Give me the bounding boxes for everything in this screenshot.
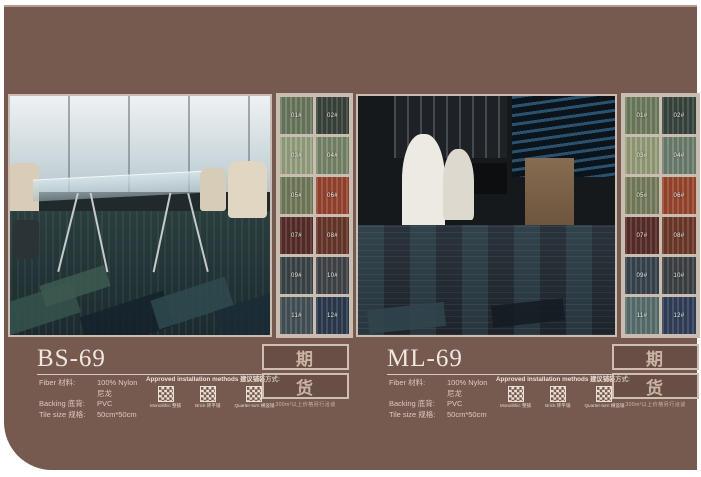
spec-label: Backing 底背: — [39, 399, 97, 410]
swatch: 11# — [625, 297, 659, 334]
catalog-page: 01# 02# 03# 04# 05# 06# 07# 08# 09# 10# … — [0, 0, 701, 477]
swatch-label: 07# — [637, 233, 648, 239]
swatch-label: 04# — [674, 153, 685, 159]
product-code: ML-69 — [387, 345, 463, 373]
swatch: 05# — [280, 177, 313, 214]
stamp-box-bottom: 货 — [612, 373, 699, 399]
photo-chair — [228, 161, 267, 218]
product-photo-bs69 — [8, 94, 272, 337]
swatch: 10# — [316, 257, 349, 294]
swatch-label: 02# — [674, 113, 685, 119]
swatch: 07# — [280, 217, 313, 254]
spec-row: Fiber 材料: 100% Nylon 尼龙 — [389, 378, 497, 399]
stamp-note: 300m²以上价格另行洽谈 — [262, 401, 349, 408]
photo-carpet — [10, 211, 270, 335]
swatch: 09# — [280, 257, 313, 294]
product-info-bs69: BS-69 Fiber 材料: 100% Nylon 尼龙 Backing 底背… — [34, 347, 354, 419]
swatch: 03# — [625, 137, 659, 174]
swatch-label: 08# — [674, 233, 685, 239]
swatch: 07# — [625, 217, 659, 254]
installation-header: Approved installation methods 建议铺装方式: — [146, 374, 256, 383]
carpet-patch — [367, 302, 446, 334]
installation-method: Monolithic 整铺 — [150, 386, 181, 409]
photo-chair — [200, 168, 226, 211]
photo-white-chair — [402, 134, 446, 234]
swatch: 12# — [662, 297, 696, 334]
swatch-label: 11# — [291, 313, 301, 319]
swatch-label: 09# — [637, 273, 648, 279]
swatch: 08# — [662, 217, 696, 254]
spec-label: Fiber 材料: — [39, 378, 97, 399]
swatch: 04# — [316, 137, 349, 174]
quarter-turn-pattern-icon — [246, 386, 262, 402]
futures-stamp: 期 货 300m²以上价格另行洽谈 — [262, 344, 349, 408]
spec-row: Backing 底背: PVC — [39, 399, 147, 410]
swatch-label: 09# — [291, 273, 302, 279]
spec-value: 100% Nylon 尼龙 — [447, 378, 497, 399]
swatch-label: 12# — [327, 313, 338, 319]
swatch-label: 06# — [327, 193, 338, 199]
swatch: 01# — [625, 97, 659, 134]
spec-label: Tile size 规格: — [389, 410, 447, 421]
photo-chair — [13, 220, 39, 258]
photo-carpet — [358, 225, 615, 335]
swatch: 10# — [662, 257, 696, 294]
stamp-character: 货 — [646, 374, 665, 399]
spec-label: Backing 底背: — [389, 399, 447, 410]
spec-row: Backing 底背: PVC — [389, 399, 497, 410]
swatch: 02# — [316, 97, 349, 134]
swatch-label: 05# — [637, 193, 648, 199]
swatch: 12# — [316, 297, 349, 334]
product-info-ml69: ML-69 Fiber 材料: 100% Nylon 尼龙 Backing 底背… — [384, 347, 701, 419]
monolithic-pattern-icon — [508, 386, 524, 402]
swatch: 03# — [280, 137, 313, 174]
method-label: Brick 砖平铺 — [195, 403, 220, 409]
swatch: 02# — [662, 97, 696, 134]
spec-row: Tile size 规格: 50cm*50cm — [39, 410, 147, 421]
spec-table: Fiber 材料: 100% Nylon 尼龙 Backing 底背: PVC … — [39, 378, 147, 420]
installation-row: Monolithic 整铺 Brick 砖平铺 Quarter-turn 横竖铺 — [500, 386, 606, 409]
swatch: 09# — [625, 257, 659, 294]
spec-value: 50cm*50cm — [447, 410, 497, 421]
installation-method: Monolithic 整铺 — [500, 386, 531, 409]
swatch-grid-ml69: 01# 02# 03# 04# 05# 06# 07# 08# 09# 10# … — [621, 93, 700, 338]
spec-value: PVC — [447, 399, 497, 410]
stamp-note: 300m²以上价格另行洽谈 — [612, 401, 699, 408]
swatch-label: 01# — [637, 113, 648, 119]
monolithic-pattern-icon — [158, 386, 174, 402]
photo-white-chair — [443, 149, 474, 221]
stamp-box-bottom: 货 — [262, 373, 349, 399]
swatch: 05# — [625, 177, 659, 214]
swatch: 11# — [280, 297, 313, 334]
spec-value: PVC — [97, 399, 147, 410]
photo-counter — [525, 158, 574, 234]
product-photo-ml69 — [356, 94, 617, 337]
spec-table: Fiber 材料: 100% Nylon 尼龙 Backing 底背: PVC … — [389, 378, 497, 420]
installation-methods: Approved installation methods 建议铺装方式: Mo… — [146, 374, 256, 409]
swatch: 04# — [662, 137, 696, 174]
catalog-panel: 01# 02# 03# 04# 05# 06# 07# 08# 09# 10# … — [4, 5, 697, 470]
swatch-label: 07# — [291, 233, 302, 239]
installation-method: Brick 砖平铺 — [545, 386, 570, 409]
stamp-character: 期 — [296, 345, 315, 370]
swatch-label: 04# — [327, 153, 338, 159]
method-label: Monolithic 整铺 — [500, 403, 531, 409]
swatch-label: 08# — [327, 233, 338, 239]
spec-label: Fiber 材料: — [389, 378, 447, 399]
swatch-label: 10# — [674, 273, 685, 279]
brick-pattern-icon — [200, 386, 216, 402]
spec-row: Tile size 规格: 50cm*50cm — [389, 410, 497, 421]
swatch-label: 03# — [291, 153, 302, 159]
swatch-label: 10# — [327, 273, 338, 279]
installation-row: Monolithic 整铺 Brick 砖平铺 Quarter-turn 横竖铺 — [150, 386, 256, 409]
method-label: Monolithic 整铺 — [150, 403, 181, 409]
spec-value: 50cm*50cm — [97, 410, 147, 421]
futures-stamp: 期 货 300m²以上价格另行洽谈 — [612, 344, 699, 408]
carpet-patch — [491, 298, 565, 327]
swatch-label: 05# — [291, 193, 302, 199]
stamp-box-top: 期 — [612, 344, 699, 370]
installation-methods: Approved installation methods 建议铺装方式: Mo… — [496, 374, 606, 409]
spec-row: Fiber 材料: 100% Nylon 尼龙 — [39, 378, 147, 399]
swatch-label: 06# — [674, 193, 685, 199]
installation-header: Approved installation methods 建议铺装方式: — [496, 374, 606, 383]
swatch-grid-bs69: 01# 02# 03# 04# 05# 06# 07# 08# 09# 10# … — [276, 93, 353, 338]
brick-pattern-icon — [550, 386, 566, 402]
swatch-label: 02# — [327, 113, 338, 119]
spec-value: 100% Nylon 尼龙 — [97, 378, 147, 399]
product-code: BS-69 — [37, 345, 106, 373]
swatch: 06# — [316, 177, 349, 214]
stamp-character: 货 — [296, 374, 315, 399]
swatch-label: 11# — [637, 313, 647, 319]
swatch: 08# — [316, 217, 349, 254]
stamp-box-top: 期 — [262, 344, 349, 370]
swatch: 06# — [662, 177, 696, 214]
quarter-turn-pattern-icon — [596, 386, 612, 402]
stamp-character: 期 — [646, 345, 665, 370]
swatch-label: 03# — [637, 153, 648, 159]
swatch-label: 12# — [674, 313, 685, 319]
installation-method: Brick 砖平铺 — [195, 386, 220, 409]
swatch-label: 01# — [291, 113, 302, 119]
spec-label: Tile size 规格: — [39, 410, 97, 421]
swatch: 01# — [280, 97, 313, 134]
method-label: Brick 砖平铺 — [545, 403, 570, 409]
